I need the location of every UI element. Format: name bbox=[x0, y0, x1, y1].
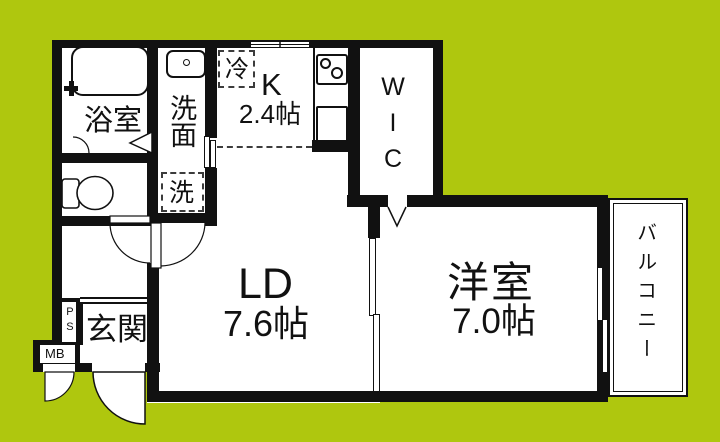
balcony-window-panel bbox=[602, 319, 608, 373]
bathtub bbox=[71, 46, 149, 96]
washroom-sliding-panel bbox=[210, 140, 216, 168]
floor-plan: 浴室 洗面 K 2.4帖 WIC LD 7.6帖 洋室 7.0帖 玄関 バルコニ… bbox=[0, 0, 720, 442]
entrance-label: 玄関 bbox=[86, 313, 148, 346]
entrance-door-opening bbox=[92, 363, 145, 372]
entrance-door-swing bbox=[93, 372, 145, 424]
entrance-step-line bbox=[80, 297, 147, 304]
balcony-label: バルコニー bbox=[633, 222, 655, 367]
living-dining-size: 7.6帖 bbox=[214, 305, 318, 344]
wall-bathroom-bottom bbox=[52, 153, 158, 163]
partition-sliding-door-panel bbox=[369, 238, 376, 316]
wall-kitchen-wic bbox=[348, 40, 360, 195]
wall-bottom bbox=[147, 391, 608, 402]
washbasin-drain bbox=[183, 59, 190, 66]
washroom-label: 洗面 bbox=[166, 94, 195, 148]
wall-wic-western-top bbox=[347, 195, 608, 207]
meter-box-opening bbox=[43, 364, 75, 372]
wall-washroom-bottom bbox=[147, 213, 217, 223]
western-room-size: 7.0帖 bbox=[441, 303, 547, 341]
stove-burner bbox=[331, 67, 343, 79]
refrigerator-label: 冷 bbox=[225, 57, 249, 83]
kitchen-sink bbox=[316, 106, 348, 142]
kitchen-counter-edge bbox=[313, 47, 315, 145]
meter-box-door-swing bbox=[45, 372, 74, 401]
balcony-window-panel bbox=[597, 267, 603, 321]
stove-burner bbox=[320, 58, 331, 69]
western-room-label: 洋室 bbox=[447, 260, 535, 305]
kitchen-size: 2.4帖 bbox=[232, 100, 308, 128]
wic-door-opening bbox=[388, 195, 407, 207]
kitchen-ld-boundary bbox=[217, 146, 312, 148]
bathroom-label: 浴室 bbox=[81, 106, 145, 137]
wic-label: WIC bbox=[379, 73, 406, 181]
wall-wic-right bbox=[433, 40, 443, 207]
kitchen-label: K bbox=[261, 68, 282, 101]
wall-partition-top bbox=[368, 207, 380, 238]
washing-machine-label: 洗 bbox=[169, 180, 194, 207]
pipe-shaft-label: PS bbox=[63, 306, 75, 336]
kitchen-window bbox=[250, 41, 310, 48]
meter-box-label: MB bbox=[45, 347, 65, 361]
wall-toilet-bottom bbox=[52, 216, 160, 226]
partition-sliding-door-panel bbox=[373, 314, 380, 392]
wall-hall-ld bbox=[147, 263, 159, 392]
wall-washroom-right-upper bbox=[205, 46, 217, 138]
bathtub-faucet bbox=[69, 81, 74, 96]
living-dining-label: LD bbox=[238, 261, 293, 307]
